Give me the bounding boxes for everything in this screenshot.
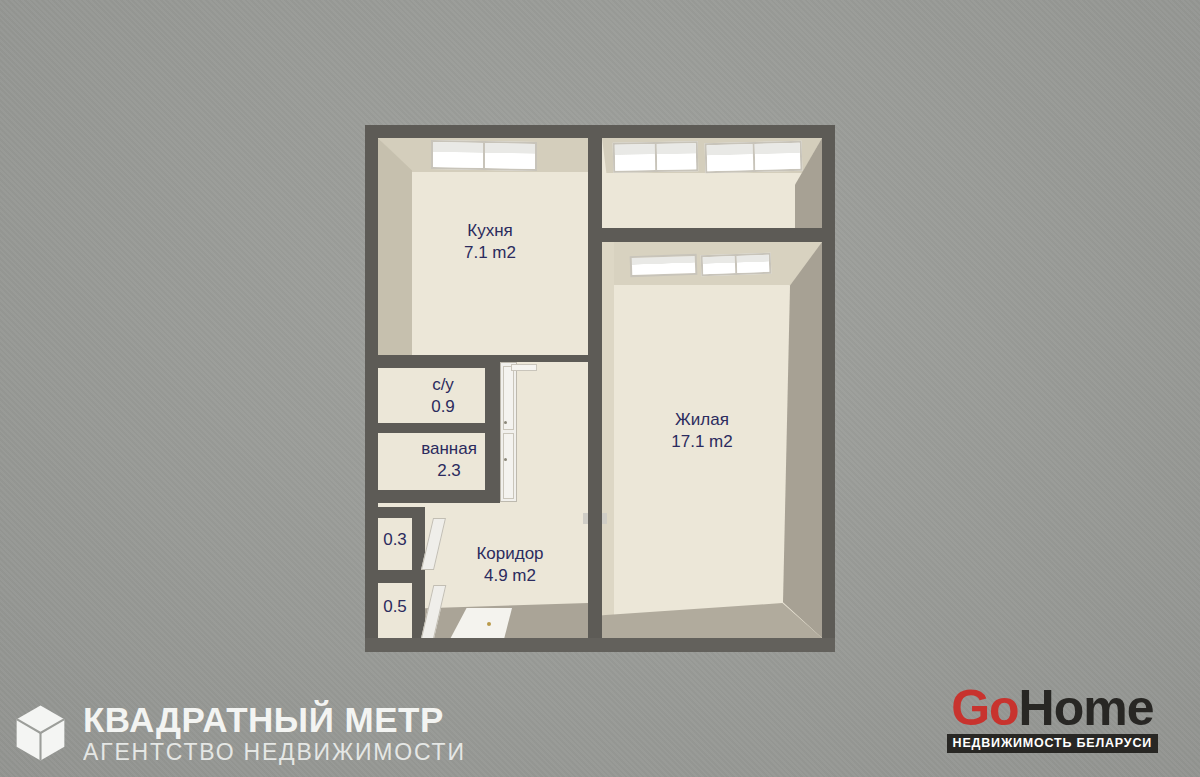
wc-door-knob (504, 421, 507, 424)
bathroom-name: ванная (394, 438, 504, 460)
wc-area: 0.9 (388, 396, 498, 418)
cube-icon (14, 704, 67, 763)
kitchen-passage-threshold (511, 364, 537, 371)
agency-text: КВАДРАТНЫЙ МЕТР АГЕНТСТВО НЕДВИЖИМОСТИ (83, 702, 466, 765)
balcony-window-pane (754, 143, 800, 170)
kitchen-area: 7.1 m2 (405, 242, 575, 264)
living-door-handle-right (602, 513, 607, 524)
kitchen-window (431, 140, 537, 171)
living-door-handle-left (583, 513, 588, 524)
agency-logo: КВАДРАТНЫЙ МЕТР АГЕНТСТВО НЕДВИЖИМОСТИ (14, 702, 466, 765)
wc-label: с/у 0.9 (388, 374, 498, 418)
wall-outer-bottom (365, 638, 835, 652)
gohome-logo: GoHome НЕДВИЖИМОСТЬ БЕЛАРУСИ (947, 684, 1158, 753)
kitchen-name: Кухня (405, 220, 575, 242)
screenshot-root: { "background_color": "#9c9e9a", "plan":… (0, 0, 1200, 777)
floor-plan: Кухня 7.1 m2 Жилая 17.1 m2 Коридор 4.9 m… (365, 125, 835, 652)
living-area: 17.1 m2 (617, 431, 787, 453)
wall-wc-bath-divider (368, 423, 485, 433)
gohome-go: Go (951, 680, 1018, 736)
agency-subtitle: АГЕНТСТВО НЕДВИЖИМОСТИ (83, 739, 466, 765)
wall-kitchen-bottom (365, 355, 511, 368)
closet-large-label: 0.5 (365, 596, 425, 618)
kitchen-window-pane (433, 142, 485, 168)
living-window-pane (632, 256, 696, 275)
gohome-tagline: НЕДВИЖИМОСТЬ БЕЛАРУСИ (947, 734, 1158, 753)
bathroom-label: ванная 2.3 (394, 438, 504, 482)
wall-outer-right (822, 125, 835, 652)
wall-outer-top (365, 125, 835, 138)
wall-closet-right (412, 507, 425, 638)
wall-outer-left (365, 125, 378, 652)
living-window-left (630, 254, 698, 277)
living-name: Жилая (617, 409, 787, 431)
living-window-right (701, 253, 772, 276)
bathroom-area: 2.3 (394, 460, 504, 482)
kitchen-window-pane (485, 143, 535, 169)
wall-balcony-living (588, 228, 835, 242)
bath-door-knob (504, 458, 507, 461)
balcony-window-pane (615, 144, 657, 171)
corridor-area: 4.9 m2 (425, 565, 595, 587)
gohome-home: Home (1019, 680, 1154, 736)
balcony-window-pane (656, 143, 696, 170)
balcony-window-right (705, 141, 803, 174)
corridor-name: Коридор (425, 543, 595, 565)
wc-name: с/у (388, 374, 498, 396)
gohome-wordmark: GoHome (947, 684, 1158, 732)
balcony-window-left (613, 141, 699, 172)
wall-kitchen-lintel (511, 355, 588, 362)
entrance-door-knob (487, 622, 491, 626)
living-window-pane (703, 256, 738, 274)
closet-small-label: 0.3 (365, 529, 425, 551)
closet-small-area: 0.3 (365, 529, 425, 551)
living-window-pane (737, 255, 770, 273)
living-wall-face-left (602, 242, 614, 615)
kitchen-label: Кухня 7.1 m2 (405, 220, 575, 264)
living-label: Жилая 17.1 m2 (617, 409, 787, 453)
closet-large-area: 0.5 (365, 596, 425, 618)
wall-bath-bottom (368, 490, 500, 503)
bath-door (503, 433, 514, 499)
balcony-window-pane (707, 144, 755, 171)
agency-title: КВАДРАТНЫЙ МЕТР (83, 702, 466, 738)
corridor-label: Коридор 4.9 m2 (425, 543, 595, 587)
